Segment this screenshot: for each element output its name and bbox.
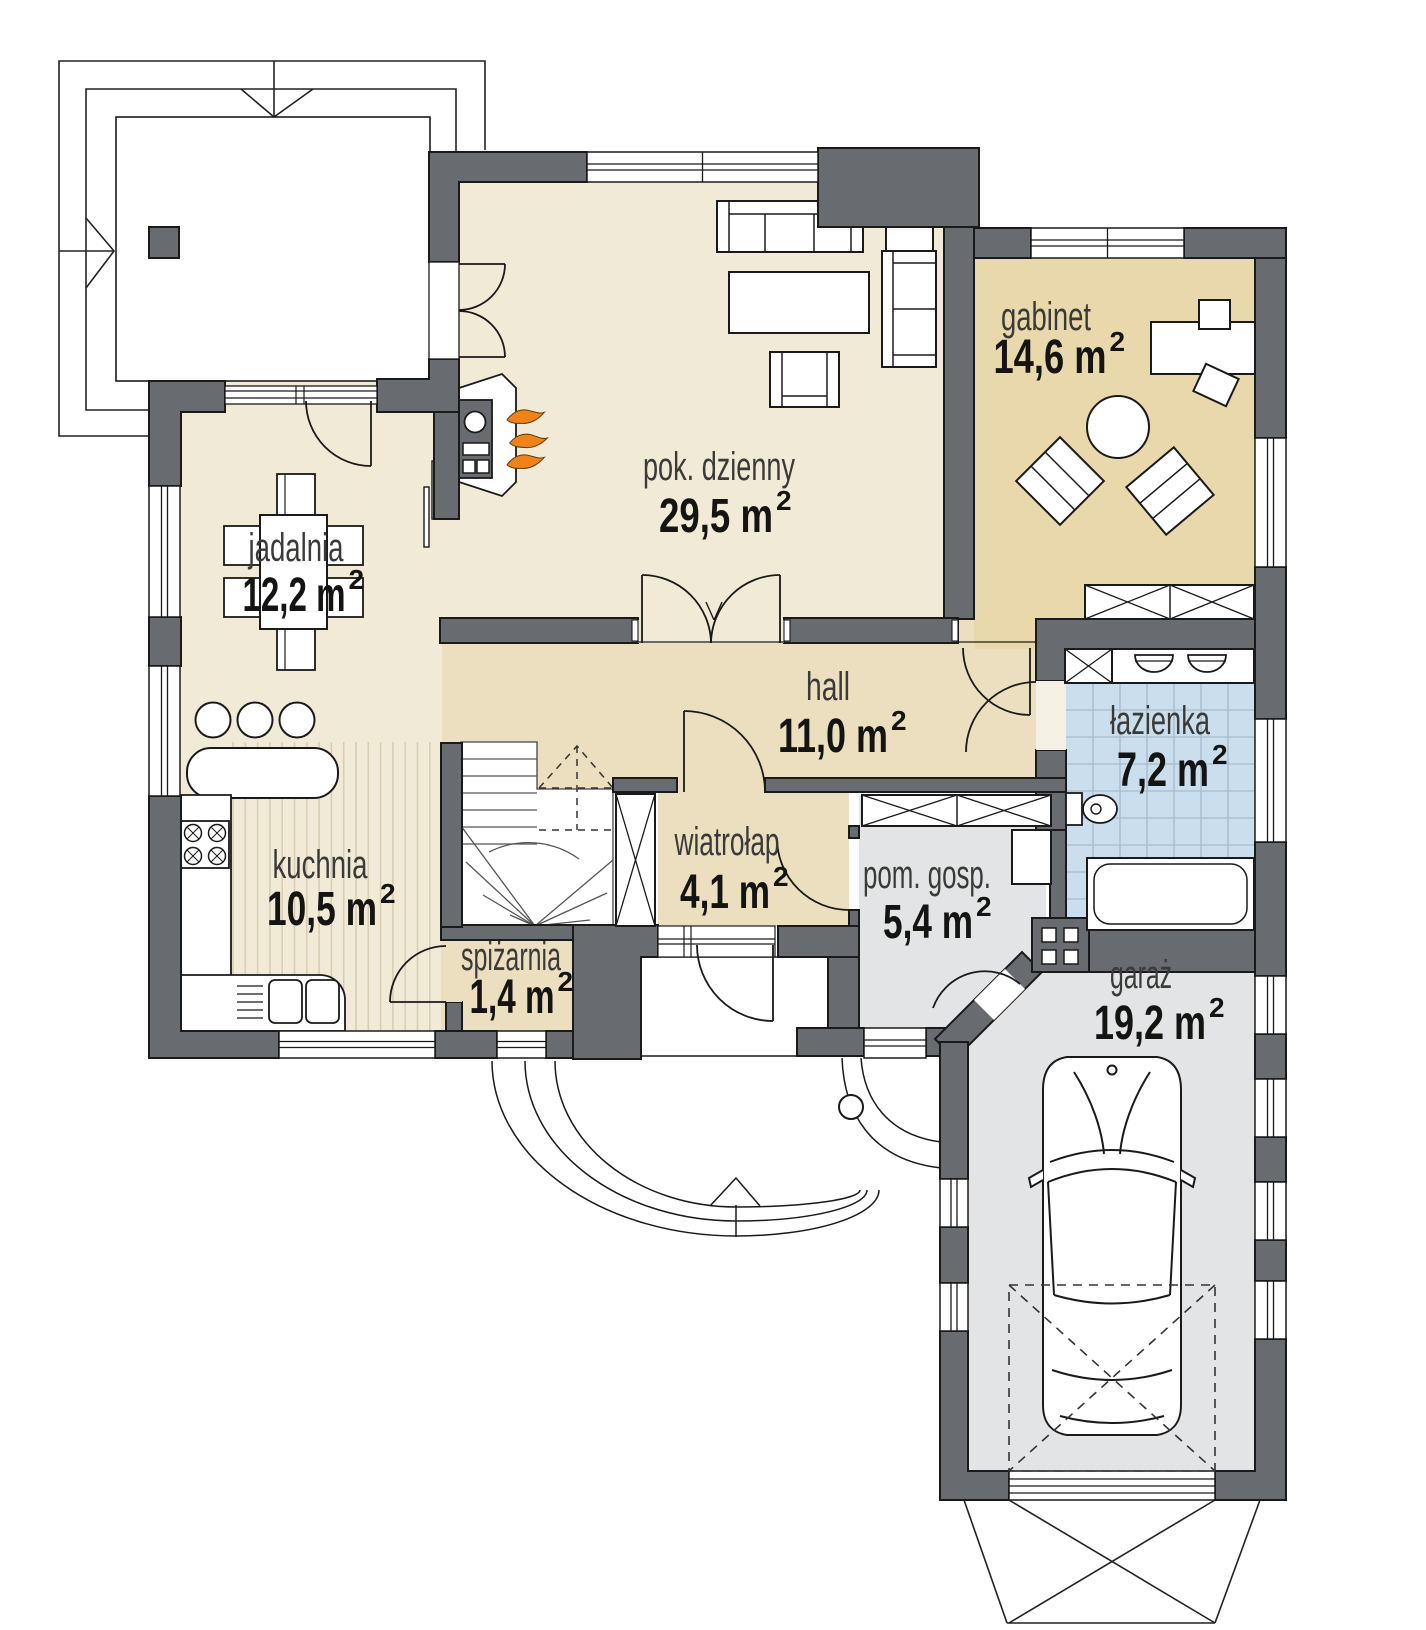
svg-text:19,2 m: 19,2 m (1094, 997, 1206, 1050)
svg-text:2: 2 (1110, 326, 1126, 357)
svg-text:2: 2 (1212, 739, 1228, 770)
svg-text:14,6 m: 14,6 m (994, 331, 1107, 384)
svg-text:garaż: garaż (1110, 953, 1172, 997)
svg-text:kuchnia: kuchnia (273, 843, 369, 887)
svg-text:2: 2 (976, 891, 992, 922)
svg-text:wiatrołap: wiatrołap (674, 820, 780, 864)
svg-text:jadalnia: jadalnia (248, 526, 344, 570)
svg-text:2: 2 (1209, 992, 1225, 1023)
svg-text:7,2 m: 7,2 m (1117, 744, 1209, 797)
svg-text:pom. gosp.: pom. gosp. (863, 853, 991, 897)
svg-text:10,5 m: 10,5 m (267, 883, 377, 936)
svg-text:2: 2 (891, 705, 907, 736)
svg-text:29,5 m: 29,5 m (659, 490, 773, 543)
svg-text:1,4 m: 1,4 m (470, 971, 555, 1024)
svg-text:2: 2 (558, 966, 574, 997)
svg-text:5,4 m: 5,4 m (883, 896, 973, 949)
svg-text:4,1 m: 4,1 m (680, 866, 770, 919)
svg-text:hall: hall (806, 665, 850, 709)
svg-text:2: 2 (773, 861, 789, 892)
svg-text:2: 2 (380, 878, 396, 909)
svg-text:11,0 m: 11,0 m (778, 710, 888, 763)
svg-text:pok. dzienny: pok. dzienny (643, 445, 795, 489)
svg-text:łazienka: łazienka (1110, 699, 1211, 743)
svg-text:2: 2 (776, 485, 792, 516)
svg-text:2: 2 (349, 564, 365, 595)
svg-text:12,2 m: 12,2 m (243, 569, 346, 622)
